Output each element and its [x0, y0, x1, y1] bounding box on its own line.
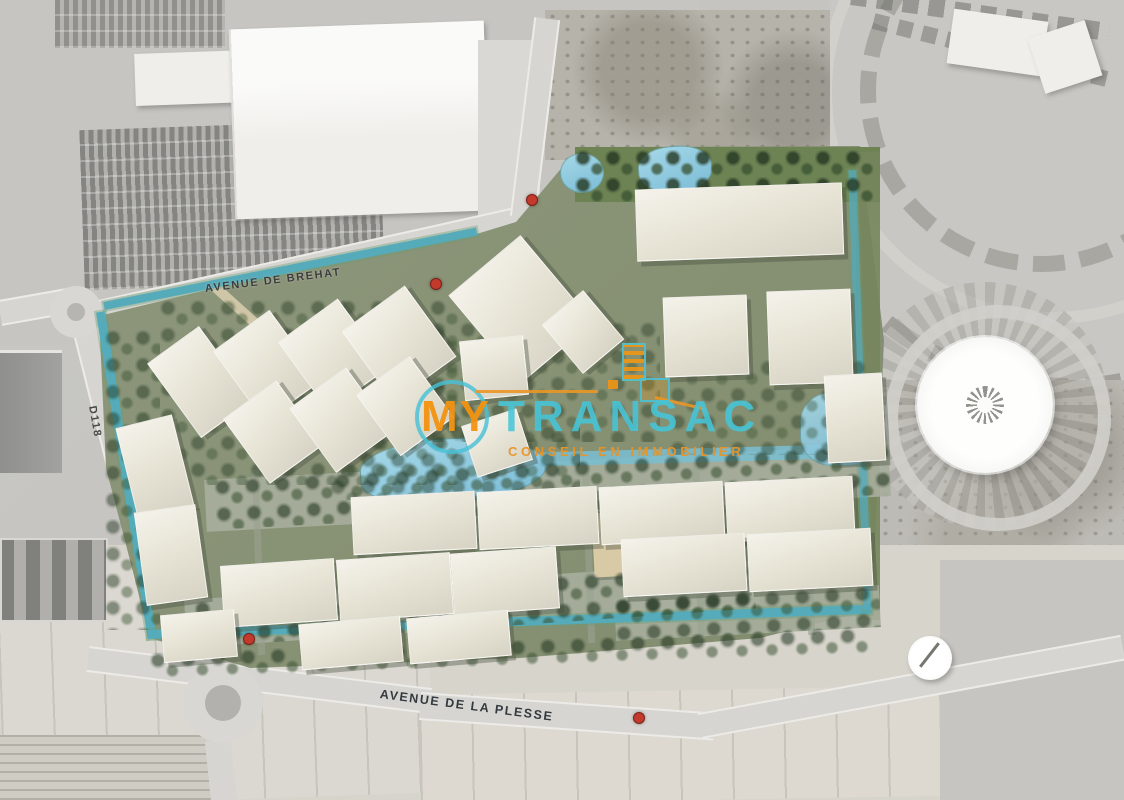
site-access-marker [243, 633, 255, 645]
industrial-building [0, 350, 62, 473]
roundabout-island [205, 685, 241, 721]
building [450, 546, 560, 615]
site-access-marker [633, 712, 645, 724]
building [477, 486, 600, 550]
building [766, 289, 853, 386]
building [635, 182, 844, 261]
aerial-masterplan-map: AVENUE DE BREHAT AVENUE DE LA PLESSE D11… [0, 0, 1124, 800]
building [336, 552, 454, 622]
industrial-building [0, 538, 108, 622]
building [747, 528, 874, 592]
site-access-marker [526, 194, 538, 206]
building [406, 610, 512, 665]
dome-roof-center [977, 397, 993, 413]
building [459, 335, 529, 401]
building [621, 533, 748, 597]
site-access-marker [430, 278, 442, 290]
building [134, 504, 208, 606]
warehouse-building [229, 21, 490, 220]
roundabout-northwest [50, 286, 102, 338]
ploughed-field [0, 735, 215, 800]
building [298, 616, 404, 671]
roundabout-island [67, 303, 85, 321]
water-tower [908, 636, 952, 680]
building [351, 491, 478, 555]
parking-lot [55, 0, 225, 48]
building [663, 295, 750, 378]
building [220, 558, 338, 628]
building [160, 609, 238, 663]
building [824, 373, 887, 464]
dome-roof-hub [966, 386, 1004, 424]
